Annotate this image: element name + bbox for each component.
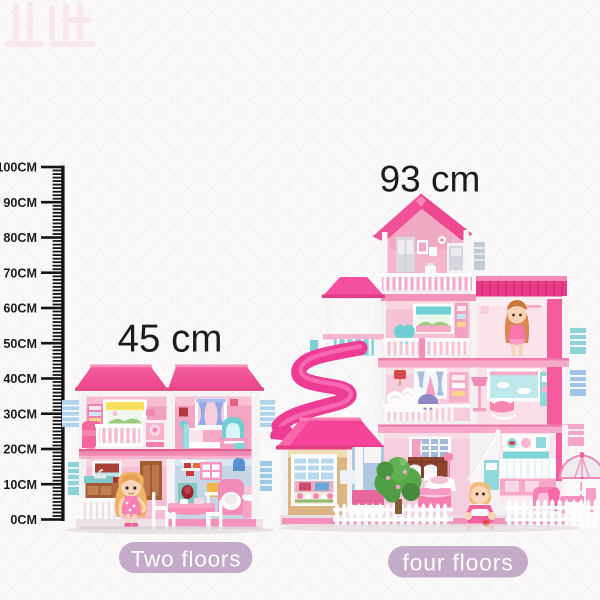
svg-text:four floors: four floors	[402, 550, 513, 576]
svg-text:20CM: 20CM	[3, 443, 37, 457]
svg-text:30CM: 30CM	[3, 407, 37, 421]
svg-text:93 cm: 93 cm	[380, 159, 481, 200]
svg-text:100CM: 100CM	[0, 161, 37, 175]
svg-text:60CM: 60CM	[3, 302, 37, 316]
svg-text:0CM: 0CM	[10, 513, 37, 527]
svg-text:80CM: 80CM	[3, 231, 37, 245]
svg-text:90CM: 90CM	[3, 196, 37, 210]
svg-text:Two floors: Two floors	[131, 547, 242, 572]
svg-text:50CM: 50CM	[3, 337, 37, 351]
svg-text:70CM: 70CM	[3, 266, 37, 280]
svg-text:40CM: 40CM	[3, 372, 37, 386]
svg-text:10CM: 10CM	[3, 478, 37, 492]
svg-text:45 cm: 45 cm	[118, 318, 223, 361]
